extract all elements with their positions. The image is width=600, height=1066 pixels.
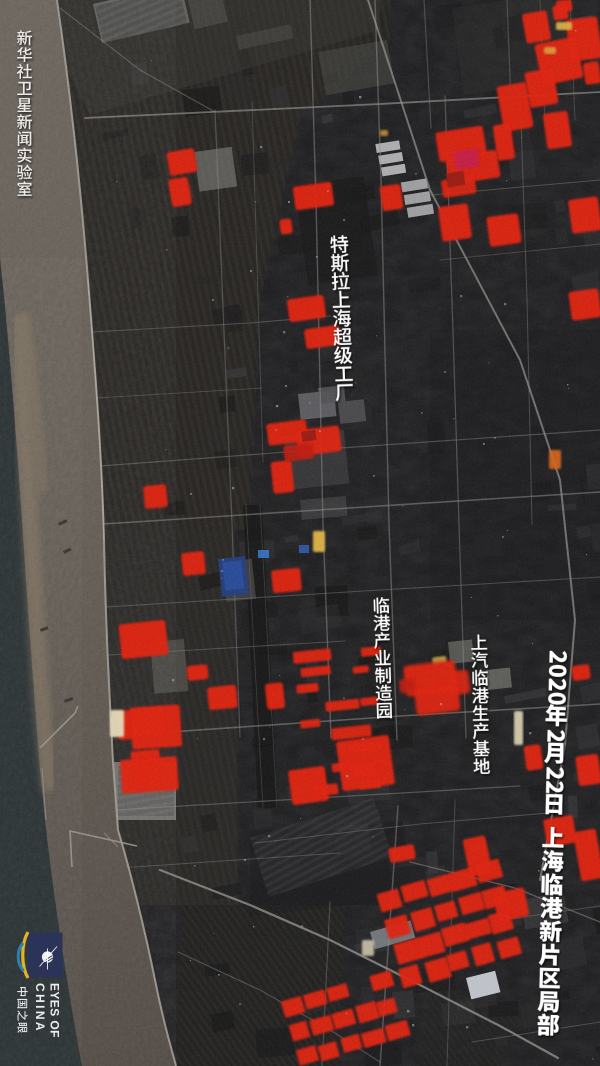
svg-text:CHINA: CHINA bbox=[33, 983, 47, 1033]
svg-text:EYES OF: EYES OF bbox=[48, 983, 62, 1038]
